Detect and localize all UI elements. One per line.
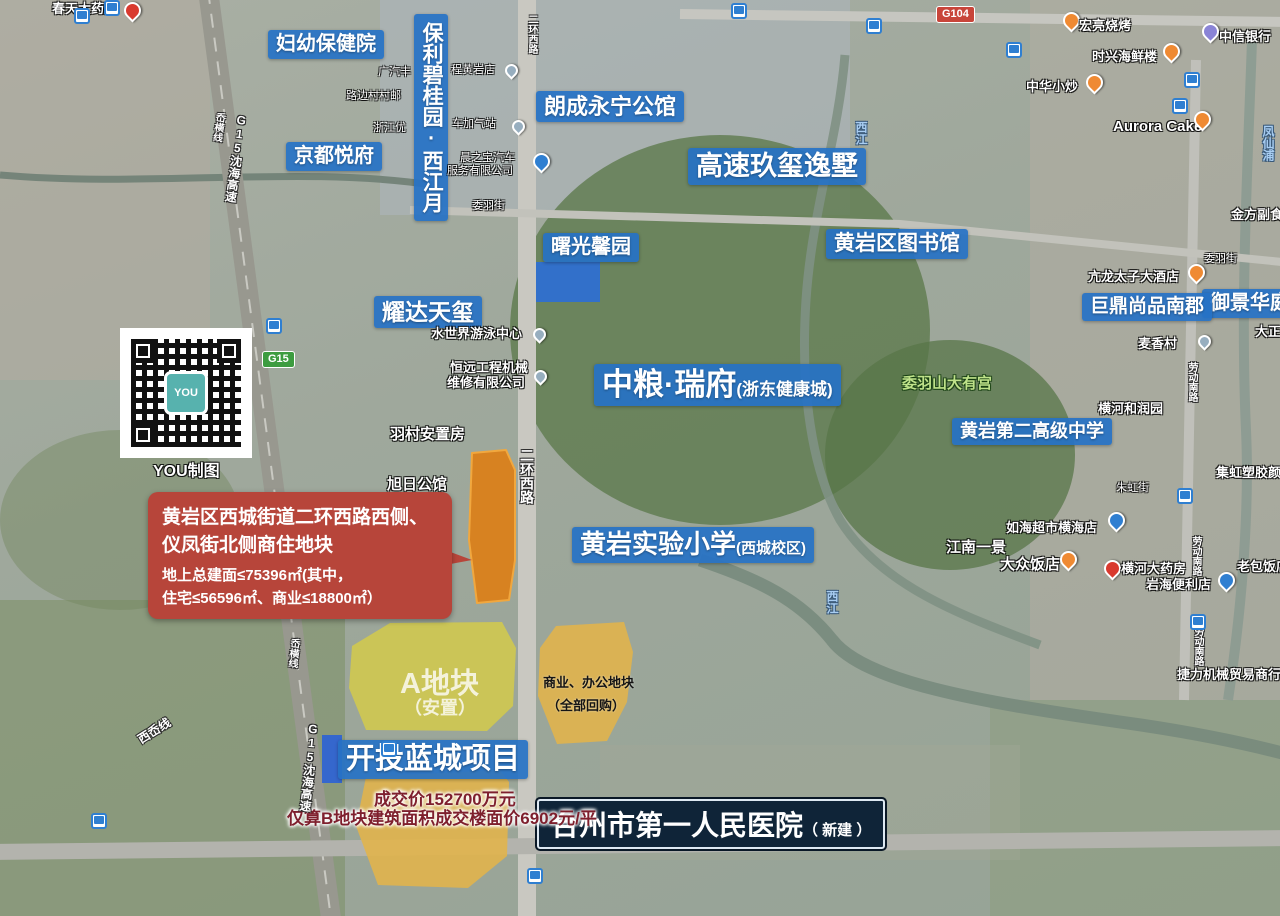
satellite-map: 妇幼保健院 保利碧桂园·西江月 朗成永宁公馆 高速玖玺逸墅 京都悦府 曙光馨园 … [0,0,1280,916]
callout-title-line2: 仪凤街北侧商住地块 [162,532,440,560]
parcel-biz-label: 商业、办公地块 [543,672,634,691]
road-label-laodong-south-3: 劳动南路 [1190,626,1205,666]
qr-center-logo: YOU [164,371,208,415]
project-label-langcheng-yongning: 朗成永宁公馆 [536,91,684,122]
poi-chenzhibao-auto-line1: 晨之宝汽车 [460,152,515,165]
parcel-overlays [0,0,1280,916]
poi-guangqi: 广汽丰 [378,66,411,79]
bus-stop-icon[interactable] [1172,98,1188,114]
poi-yanhai-store: 岩海便利店 [1146,578,1211,593]
bus-stop-icon[interactable] [1177,488,1193,504]
bus-stop-icon[interactable] [731,3,747,19]
qr-caption: YOU制图 [153,463,220,481]
poi-hengyuan-machinery-line2: 维修有限公司 [447,376,525,391]
bus-stop-icon[interactable] [866,18,882,34]
road-label-laodong-south-2: 劳动南路 [1188,536,1203,576]
project-label-shuguang-xinyuan: 曙光馨园 [543,233,639,262]
bus-stop-icon[interactable] [1184,72,1200,88]
poi-jiangnan-yijing: 江南一景 [946,539,1006,556]
subject-parcel-boundary [469,450,515,603]
parcel-a-sublabel: （安置） [404,694,476,720]
poi-jinfang-grocery: 金方副食 [1231,208,1280,223]
qr-eye-icon [217,339,241,363]
qr-eye-icon [131,339,155,363]
bus-stop-icon[interactable] [74,8,90,24]
project-label-juding-shangpin: 巨鼎尚品南郡 [1082,293,1212,321]
hospital-sub: （ 新建 ） [803,822,871,839]
bus-stop-icon[interactable] [381,741,397,757]
floor-price-text: 仅算B地块建筑面积成交楼面价6902元/平 [287,804,597,829]
poi-yucun-resettlement: 羽村安置房 [390,426,465,443]
project-label-fuyou-baojianyuan: 妇幼保健院 [268,30,384,59]
poi-dazhong-restaurant: 大众饭店 [1000,556,1060,573]
road-label-zhuhong-street: 朱虹街 [1116,482,1149,495]
g104-route-badge: G104 [936,6,975,23]
poi-dazheng: 大正 [1255,325,1280,340]
road-label-weiyu-street-east: 委羽街 [1204,253,1237,266]
poi-henghe-pharmacy: 横河大药房 [1121,562,1186,577]
poi-weiyushan-temple: 委羽山大有宫 [902,375,992,392]
poi-xuri-mansion: 旭日公馆 [387,476,447,493]
project-label-kaitou-lancheng: 开投蓝城项目 [338,740,528,779]
poi-laobao-restaurant: 老包饭店 [1237,560,1280,575]
poi-water-world-pool: 水世界游泳中心 [431,327,522,342]
road-label-aoheng-south: 岙横线 [283,637,301,668]
poi-shixing-seafood: 时兴海鲜楼 [1092,50,1157,65]
poi-chenzhibao-auto-line2: 服务有限公司 [447,165,513,178]
callout-body-line2: 住宅≤56596㎡、商业≤18800㎡） [162,588,440,609]
zhongliang-sub: (浙东健康城) [736,380,832,399]
project-label-yaoda-tianxi: 耀达天玺 [374,296,482,328]
poi-jihong-plastics: 集虹塑胶颜料 [1216,466,1280,481]
primary-sub: (西城校区) [736,540,806,557]
g15-route-badge: G15 [262,351,295,368]
river-label-xijiang-north: 西江 [853,121,870,145]
bus-stop-icon[interactable] [266,318,282,334]
project-label-baoli-biguiyuan: 保利碧桂园·西江月 [414,14,448,221]
parcel-biz-sublabel: （全部回购） [547,695,625,714]
poi-maixiang-village: 麦香村 [1138,337,1177,352]
project-label-experimental-primary: 黄岩实验小学(西城校区) [572,527,814,563]
road-label-erhuan-west-top: 二环西路 [524,14,539,54]
project-label-huangyan-library: 黄岩区图书馆 [826,229,968,259]
project-label-no2-school: 黄岩第二高级中学 [952,418,1112,445]
poi-kanglong-hotel: 亢龙太子大酒店 [1088,270,1179,285]
river-label-xijiang-south: 西江 [824,590,841,614]
callout-body-line1: 地上总建面≤75396㎡(其中， [162,565,440,586]
bus-stop-icon[interactable] [1190,614,1206,630]
poi-jieli-machinery: 捷力机械贸易商行 [1177,668,1280,683]
poi-huangyan-store: 程黄岩店 [451,64,495,77]
poi-henghe-herunyuan: 横河和润园 [1098,402,1163,417]
project-label-jingdu-yuefu: 京都悦府 [286,142,382,171]
qr-pattern: YOU [131,339,241,447]
poi-citic-bank: 中信银行 [1219,30,1271,45]
subject-parcel-callout: 黄岩区西城街道二环西路西侧、 仪凤街北侧商住地块 地上总建面≤75396㎡(其中… [148,492,452,619]
qr-code: YOU [120,328,252,458]
river-label-fengxianpu: 凤仙浦 [1260,125,1277,161]
project-label-zhongliang-ruifu: 中粮·瑞府(浙东健康城) [594,364,841,406]
poi-hongliang-bbq: 宏亮烧烤 [1079,19,1131,34]
road-label-weiyu-street-west: 委羽街 [472,200,505,213]
qr-eye-icon [131,423,155,447]
zhongliang-main: 中粮·瑞府 [602,367,736,402]
bus-stop-icon[interactable] [1006,42,1022,58]
poi-ruhai-supermarket: 如海超市横海店 [1006,521,1097,536]
poi-zhonghua-stirfry: 中华小炒 [1026,80,1078,95]
bus-stop-icon[interactable] [527,868,543,884]
poi-lubian-post: 路边村村邮 [346,90,401,103]
poi-gas-station: 车加气站 [452,118,496,131]
poi-zhejiangyou: 浙江优 [373,122,406,135]
project-label-gaosu-jiuxi: 高速玖玺逸墅 [688,148,866,185]
bus-stop-icon[interactable] [91,813,107,829]
road-label-erhuan-west-mid: 二环西路 [517,448,537,504]
callout-title-line1: 黄岩区西城街道二环西路西侧、 [162,504,440,532]
project-label-yujing-huating: 御景华庭 [1202,289,1280,318]
bus-stop-icon[interactable] [104,0,120,16]
road-label-laodong-south-1: 劳动南路 [1184,362,1199,402]
primary-main: 黄岩实验小学 [580,529,736,559]
poi-hengyuan-machinery-line1: 恒远工程机械 [450,361,528,376]
poi-aurora-cake: Aurora Cake [1113,118,1202,135]
